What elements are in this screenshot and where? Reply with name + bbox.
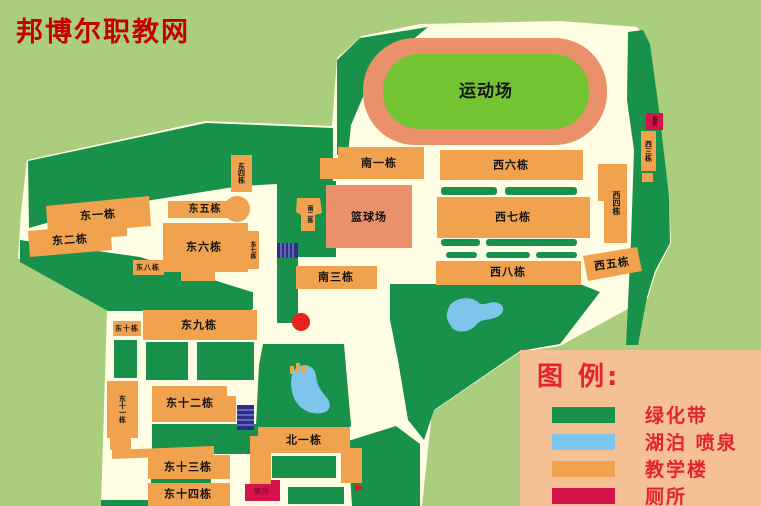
- label-xi4: 西四栋: [612, 191, 620, 215]
- label-nan3: 南三栋: [318, 272, 354, 283]
- legend-row-building: 教学楼: [537, 455, 761, 482]
- legend-title: 图 例:: [537, 356, 761, 393]
- legend-row-toilet: 厕所: [537, 482, 761, 506]
- site-watermark: 邦博尔职教网: [16, 10, 190, 49]
- building-dong5-round: [224, 196, 250, 222]
- legend-row-green: 绿化带: [537, 401, 761, 428]
- label-nan2: 南二栋: [306, 205, 312, 223]
- label-dong5: 东五栋: [189, 205, 222, 215]
- label-dong14: 东十四栋: [164, 489, 212, 500]
- legend-swatch-teaching-building: [552, 461, 615, 477]
- legend-swatch-lake-fountain: [552, 434, 615, 450]
- building-dong6-foot: [181, 272, 215, 281]
- label-dong2: 东二栋: [52, 233, 89, 246]
- building-bei1-left: [250, 436, 271, 484]
- building-xi3-foot: [642, 173, 653, 182]
- label-dong13: 东十三栋: [164, 462, 212, 473]
- legend-swatch-toilet: [552, 488, 615, 504]
- label-nan1: 南一栋: [361, 158, 397, 169]
- label-dong6: 东六栋: [186, 242, 222, 253]
- label-bei1: 北一栋: [286, 435, 322, 446]
- label-dong12: 东十二栋: [166, 398, 214, 409]
- label-dong1: 东一栋: [80, 208, 117, 221]
- label-toilet-north: 厕所: [254, 489, 270, 496]
- building-bei1-right: [341, 448, 362, 483]
- label-xi3: 西三栋: [645, 141, 652, 162]
- label-dong9: 东九栋: [181, 320, 217, 331]
- label-dong8: 东八栋: [136, 265, 160, 272]
- label-dong7: 东七栋: [249, 241, 255, 259]
- red-dot-marker: [292, 313, 310, 331]
- label-xi6: 西六栋: [493, 160, 529, 171]
- legend-panel: 图 例: 绿化带 湖泊 喷泉 教学楼 厕所: [520, 350, 761, 506]
- building-dong11-foot: [110, 438, 131, 450]
- label-xi7: 西七栋: [495, 212, 531, 223]
- label-xi8: 西八栋: [490, 267, 526, 278]
- label-dong4: 东四栋: [238, 163, 245, 184]
- legend-label-green-belt: 绿化带: [645, 401, 708, 428]
- legend-swatch-green-belt: [552, 407, 615, 423]
- label-basketball-court: 篮球场: [351, 212, 387, 223]
- legend-label-teaching-building: 教学楼: [645, 455, 708, 482]
- label-dong11: 东十一栋: [119, 395, 126, 423]
- legend-label-toilet: 厕所: [645, 482, 687, 506]
- legend-row-water: 湖泊 喷泉: [537, 428, 761, 455]
- campus-map: 运动场 篮球场 南一栋 南二栋 南三栋 北一栋 西六栋 西七栋 西八栋 西五栋 …: [0, 0, 761, 506]
- label-sports-field: 运动场: [459, 84, 513, 101]
- label-toilet-east: 厕所: [652, 116, 657, 126]
- label-dong10: 东十栋: [115, 326, 139, 333]
- legend-label-lake-fountain: 湖泊 喷泉: [645, 428, 738, 455]
